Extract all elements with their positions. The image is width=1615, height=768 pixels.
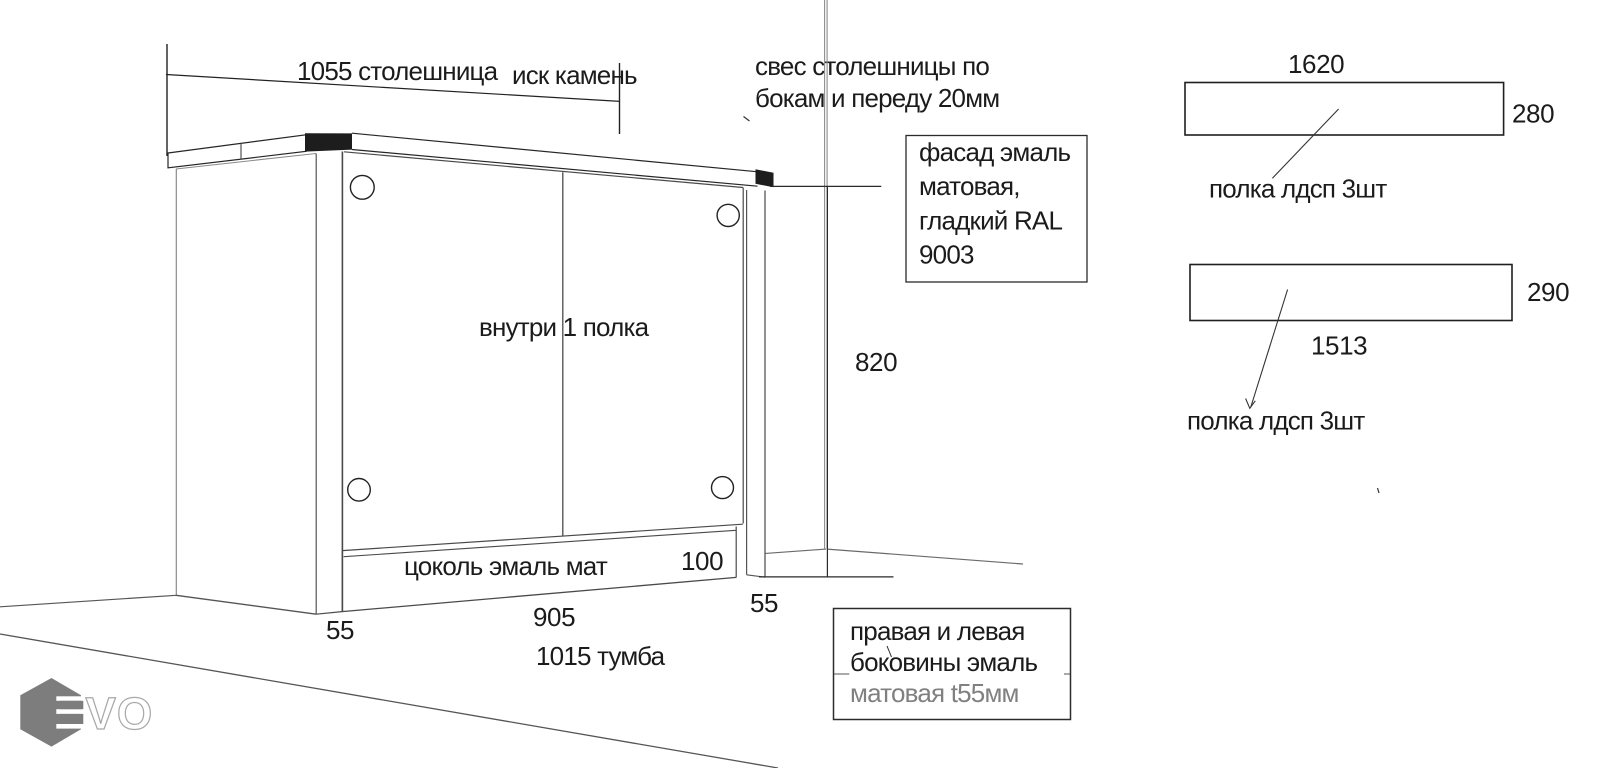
svg-text:1513: 1513 <box>1311 331 1367 361</box>
svg-text:820: 820 <box>855 347 897 377</box>
svg-text:полка лдсп 3шт: полка лдсп 3шт <box>1187 406 1365 436</box>
svg-text:55: 55 <box>326 615 354 645</box>
svg-text:1055 столешница: 1055 столешница <box>297 56 499 86</box>
svg-text:бокам и переду 20мм: бокам и переду 20мм <box>755 83 999 113</box>
svg-text:9003: 9003 <box>919 240 974 270</box>
svg-text:905: 905 <box>533 602 575 632</box>
svg-text:матовая,: матовая, <box>919 171 1020 201</box>
svg-text:свес столешницы по: свес столешницы по <box>755 51 989 81</box>
svg-text:внутри 1 полка: внутри 1 полка <box>479 312 650 342</box>
svg-text:полка лдсп 3шт: полка лдсп 3шт <box>1209 174 1387 204</box>
svg-text:боковины эмаль: боковины эмаль <box>850 647 1037 677</box>
svg-text:280: 280 <box>1512 99 1554 129</box>
svg-text:правая и левая: правая и левая <box>850 616 1025 646</box>
svg-text:иск камень: иск камень <box>512 60 637 90</box>
svg-text:VO: VO <box>86 688 154 739</box>
svg-text:матовая t55мм: матовая t55мм <box>850 678 1019 708</box>
svg-text:1015 тумба: 1015 тумба <box>536 641 666 671</box>
svg-text:290: 290 <box>1527 277 1569 307</box>
svg-text:100: 100 <box>681 546 723 576</box>
svg-text:фасад эмаль: фасад эмаль <box>919 137 1070 167</box>
svg-text:1620: 1620 <box>1288 49 1344 79</box>
svg-text:55: 55 <box>750 588 778 618</box>
svg-text:гладкий RAL: гладкий RAL <box>919 206 1062 236</box>
svg-text:цоколь эмаль мат: цоколь эмаль мат <box>404 551 608 581</box>
